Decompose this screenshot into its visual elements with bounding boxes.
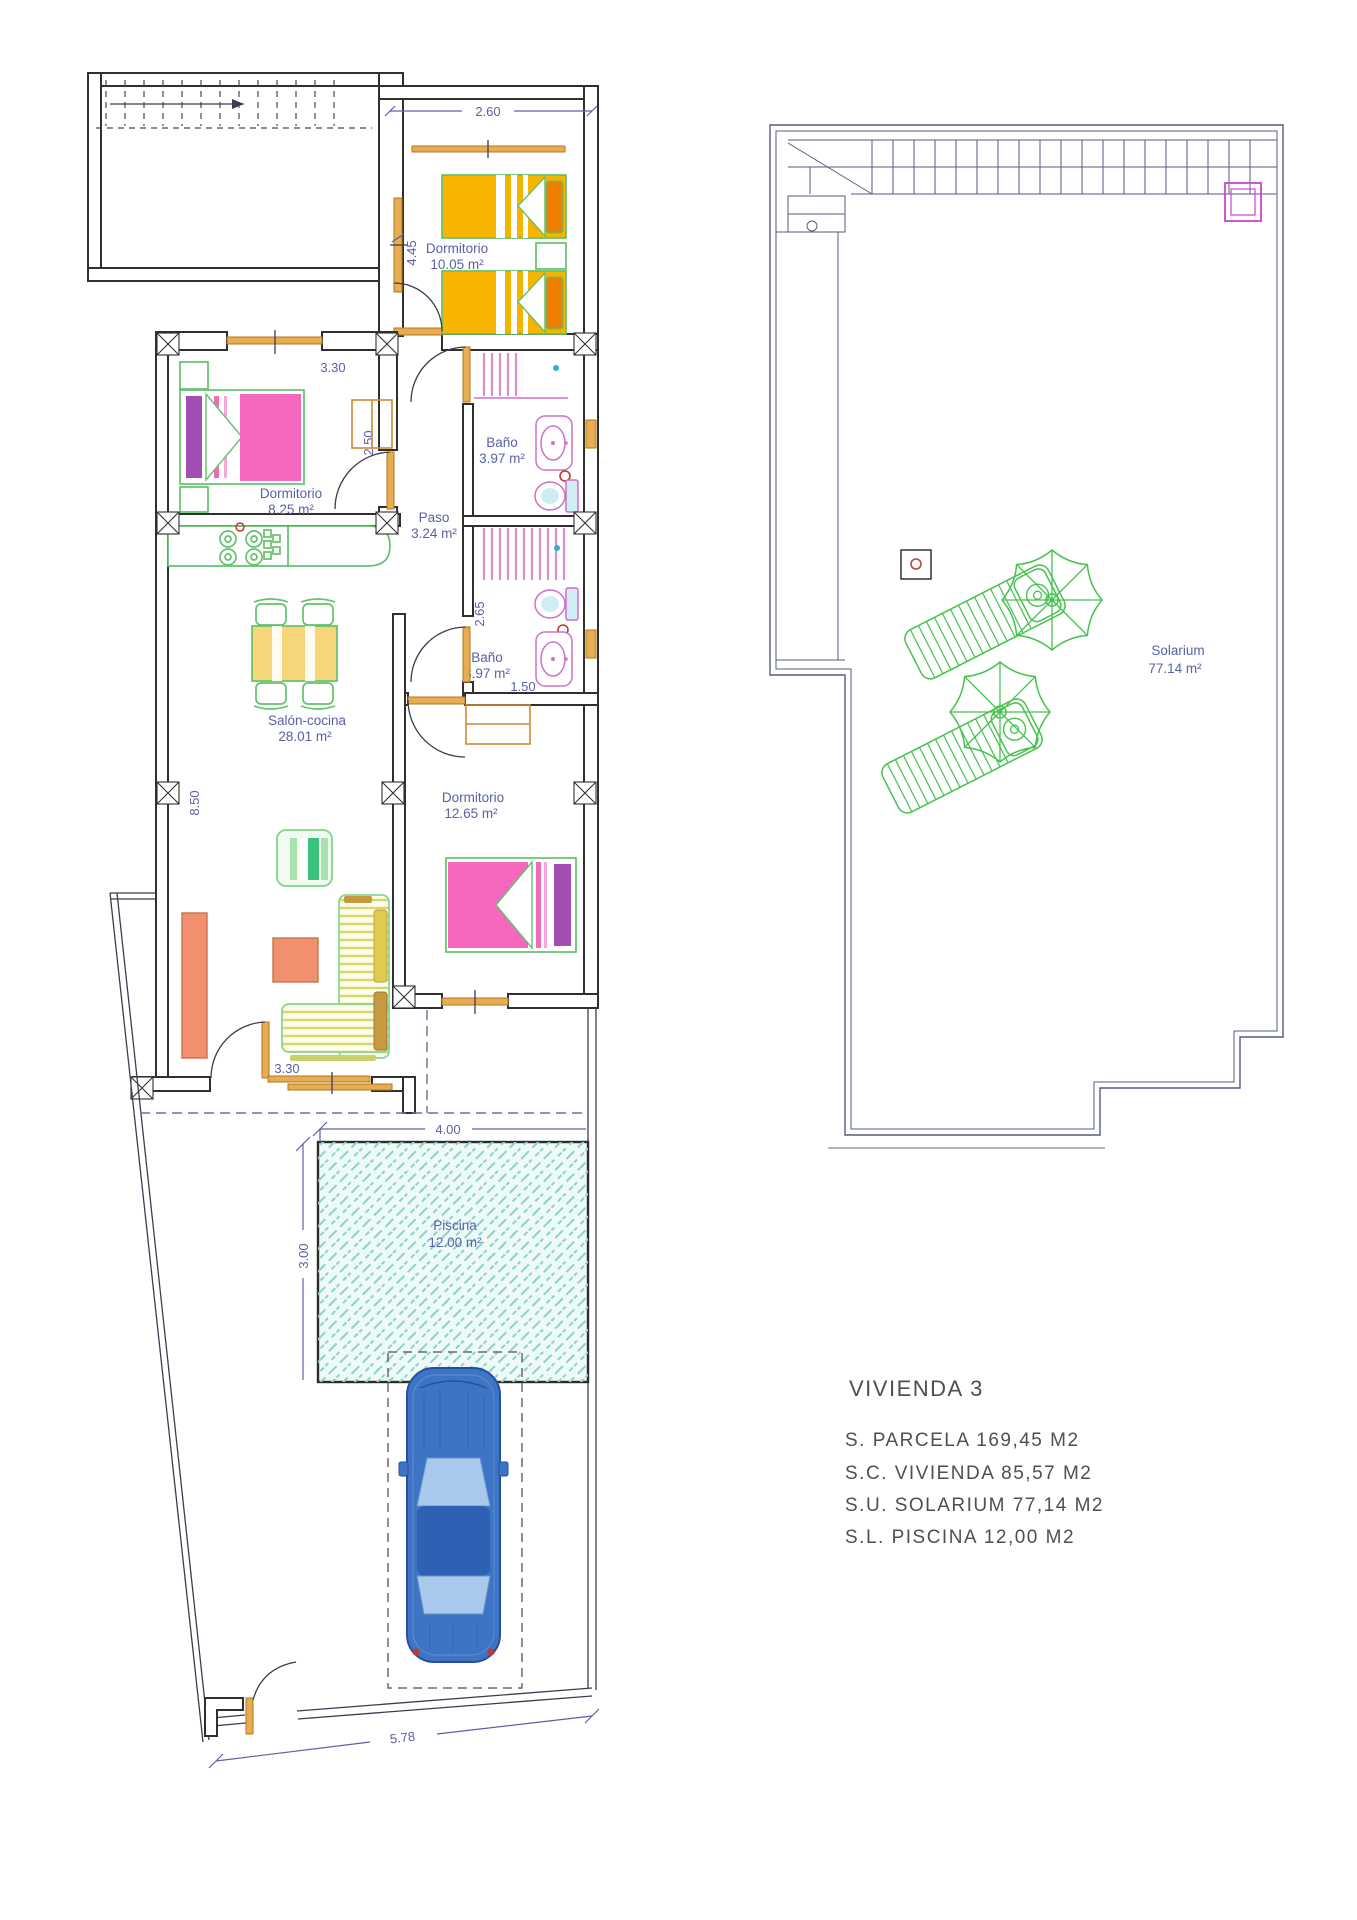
room-label-salon: Salón-cocina: [268, 713, 347, 728]
stairwell-void: [776, 232, 845, 660]
floor-plan-page: 2.60 4.45: [0, 0, 1357, 1920]
door-leaf: [262, 1022, 269, 1078]
dimension-bath2-height: 2.65: [472, 601, 487, 626]
door-arc: [211, 1022, 265, 1078]
dimension-mid-room-width: 3.30: [320, 360, 345, 375]
door-leaf: [387, 452, 394, 509]
summary-title: VIVIENDA 3: [849, 1376, 984, 1401]
room-area-bedroom3: 12.65 m²: [444, 806, 498, 821]
summary-line: S.C. VIVIENDA 85,57 M2: [845, 1463, 1092, 1484]
wardrobe-icon: [180, 362, 208, 389]
dim-label: 2.60: [475, 104, 500, 119]
dimension-bath2-width: 1.50: [510, 679, 535, 694]
room-area-bath1: 3.97 m²: [479, 451, 525, 466]
svg-text:3.30: 3.30: [274, 1061, 299, 1076]
skylight-icon: [1225, 183, 1261, 221]
door-arc: [411, 347, 466, 402]
solarium-plan: Solarium 77.14 m²: [770, 125, 1283, 1148]
bathroom1-fixtures: [474, 353, 578, 512]
toilet-icon: [535, 588, 578, 620]
sideboard-icon: [182, 913, 207, 1058]
shower-icon: [477, 353, 523, 396]
stair-block-walls: [88, 73, 403, 336]
kitchen-counter-icon: [168, 523, 390, 566]
ground-floor-plan: 2.60 4.45: [88, 73, 599, 1768]
dimension-mid-room-height: 2.50: [361, 430, 376, 455]
pool: Piscina 12.00 m²: [318, 1142, 588, 1382]
room-label-paso: Paso: [419, 510, 450, 525]
dimension-salon-door: 3.30: [274, 1061, 299, 1076]
door-leaf: [463, 347, 470, 402]
room-label-bath1: Baño: [486, 435, 518, 450]
dimension-pool-height: 3.00: [296, 1137, 311, 1380]
svg-text:1.50: 1.50: [510, 679, 535, 694]
dim-label: 4.45: [404, 240, 419, 265]
door-arc: [335, 452, 390, 509]
door-leaf: [408, 697, 465, 704]
armchair-icon: [277, 830, 332, 886]
window: [586, 420, 596, 448]
entrance-door-arc: [253, 1662, 296, 1700]
chimney-icon: [901, 550, 931, 579]
door-arc: [411, 627, 466, 682]
shower-icon: [477, 528, 567, 580]
solarium-staircase-icon: [788, 140, 1277, 232]
svg-text:3.30: 3.30: [320, 360, 345, 375]
summary-line: S.U. SOLARIUM 77,14 M2: [845, 1495, 1104, 1516]
double-bed-icon: [180, 390, 304, 484]
room-label-bedroom2: Dormitorio: [260, 486, 322, 501]
sink-icon: [536, 632, 572, 686]
umbrella-icon: [1002, 550, 1102, 650]
room-area-solarium: 77.14 m²: [1148, 661, 1202, 676]
room-area-bath2: 3.97 m²: [464, 666, 510, 681]
floor-plan-drawing: 2.60 4.45: [0, 0, 1357, 1920]
room-label-pool: Piscina: [433, 1218, 477, 1233]
sink-icon: [536, 416, 572, 470]
car-icon: [399, 1368, 508, 1662]
entrance-door-leaf: [246, 1698, 253, 1734]
sun-lounger-icon: [878, 696, 1045, 817]
room-label-solarium: Solarium: [1151, 643, 1204, 658]
nightstand-icon: [180, 487, 208, 512]
umbrella-icon: [950, 662, 1050, 762]
room-label-bath2: Baño: [471, 650, 503, 665]
coffee-table-icon: [273, 938, 318, 982]
door-leaf: [394, 328, 442, 335]
svg-text:3.00: 3.00: [296, 1243, 311, 1268]
toilet-icon: [535, 480, 578, 512]
room-label-bedroom3: Dormitorio: [442, 790, 504, 805]
room-area-bedroom2: 8.25 m²: [268, 502, 314, 517]
dimension-plot-width: 5.78: [209, 1709, 599, 1768]
svg-text:2.50: 2.50: [361, 430, 376, 455]
door-leaf: [463, 627, 470, 682]
staircase-icon: [96, 80, 372, 128]
door-arc: [408, 700, 465, 757]
svg-text:2.65: 2.65: [472, 601, 487, 626]
svg-text:8.50: 8.50: [187, 790, 202, 815]
dimension-salon-height: 8.50: [187, 790, 202, 815]
summary-line: S. PARCELA 169,45 M2: [845, 1430, 1080, 1451]
svg-text:4.00: 4.00: [435, 1122, 460, 1137]
room-area-paso: 3.24 m²: [411, 526, 457, 541]
room-area-salon: 28.01 m²: [278, 729, 332, 744]
window: [586, 630, 596, 658]
double-bed-icon: [446, 858, 576, 952]
room-label-bedroom1: Dormitorio: [426, 241, 488, 256]
room-area-pool: 12.00 m²: [428, 1235, 482, 1250]
room-area-bedroom1: 10.05 m²: [430, 257, 484, 272]
dimension-pool-width: 4.00: [313, 1122, 586, 1142]
dining-table-icon: [252, 599, 337, 709]
dimension-top-room-width: 2.60: [385, 104, 597, 119]
summary-block: VIVIENDA 3 S. PARCELA 169,45 M2 S.C. VIV…: [845, 1376, 1104, 1548]
summary-line: S.L. PISCINA 12,00 M2: [845, 1527, 1075, 1548]
svg-text:5.78: 5.78: [389, 1729, 416, 1747]
